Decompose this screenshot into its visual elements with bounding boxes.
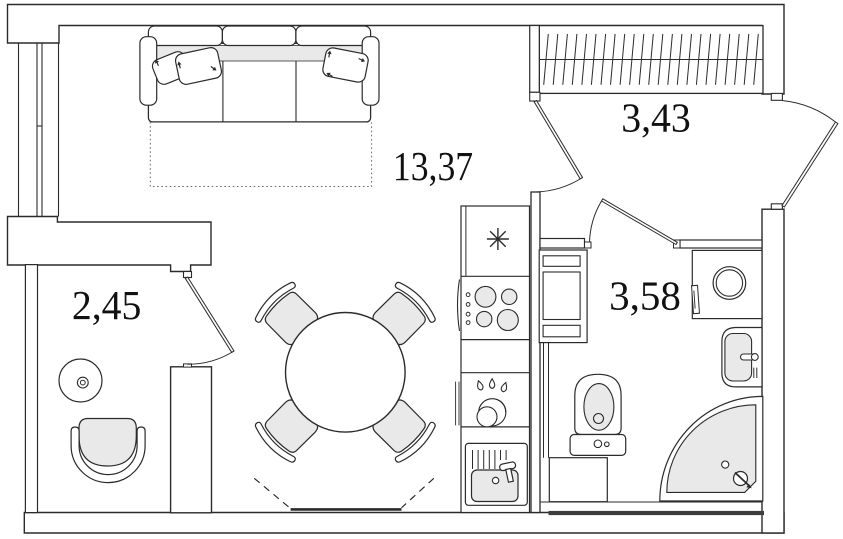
svg-text:3,43: 3,43 bbox=[621, 95, 691, 141]
svg-text:3,58: 3,58 bbox=[609, 273, 681, 319]
svg-text:2,45: 2,45 bbox=[72, 282, 142, 328]
svg-text:13,37: 13,37 bbox=[393, 145, 473, 190]
